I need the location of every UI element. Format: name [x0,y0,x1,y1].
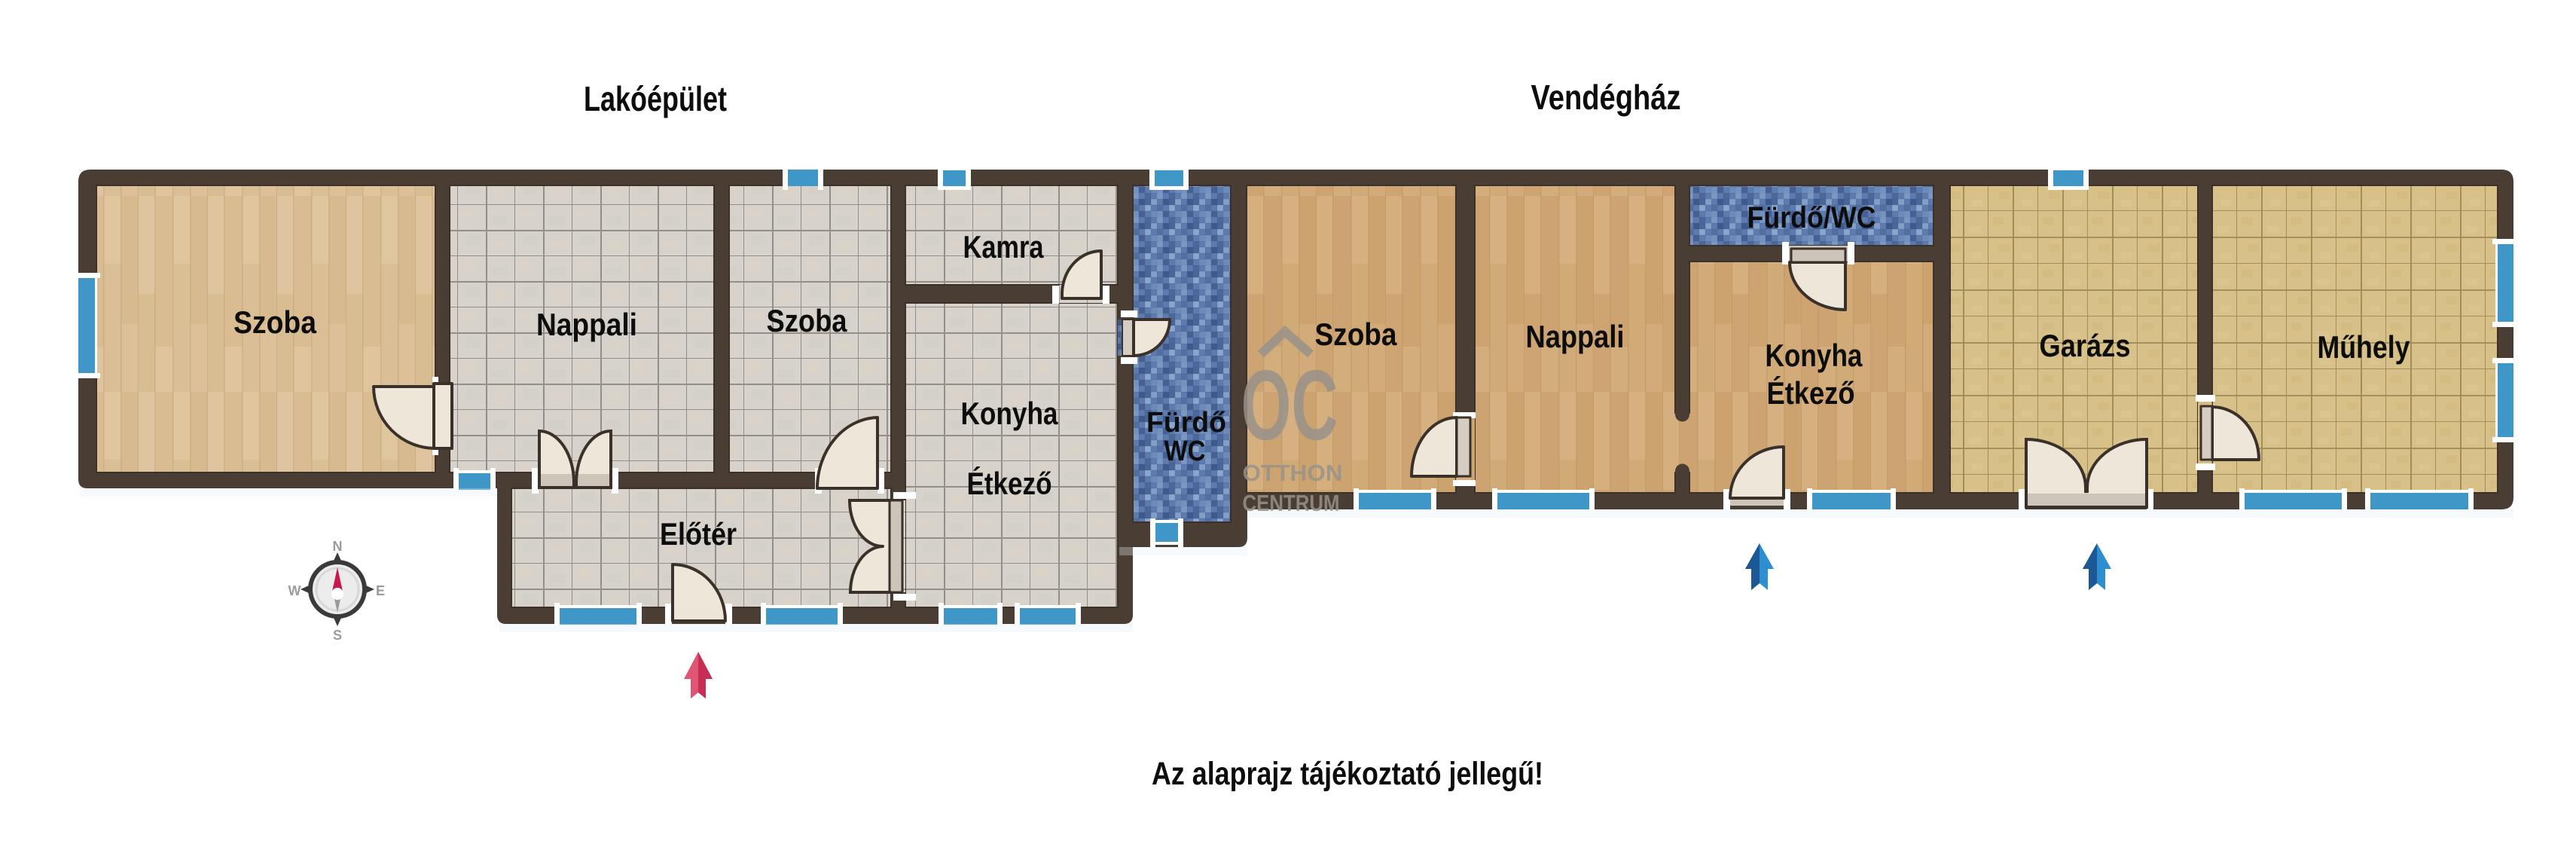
svg-text:S: S [333,628,342,643]
svg-text:Fürdő/WC: Fürdő/WC [1747,201,1876,234]
svg-text:Konyha: Konyha [1766,338,1863,373]
svg-text:Vendégház: Vendégház [1531,78,1681,117]
svg-text:Lakóépület: Lakóépület [584,79,727,118]
svg-text:Fürdő: Fürdő [1146,407,1226,439]
svg-text:OTTHON: OTTHON [1243,460,1343,486]
svg-text:Az alaprajz tájékoztató jelleg: Az alaprajz tájékoztató jellegű! [1152,756,1543,792]
svg-text:W: W [288,583,301,598]
svg-text:Konyha: Konyha [961,396,1059,431]
svg-text:N: N [333,539,343,554]
svg-text:Műhely: Műhely [2318,329,2411,365]
svg-text:WC: WC [1164,436,1206,467]
svg-text:Garázs: Garázs [2040,328,2131,363]
svg-text:Étkező: Étkező [967,466,1052,501]
svg-text:Kamra: Kamra [963,229,1045,265]
svg-text:Étkező: Étkező [1767,375,1855,411]
svg-text:CENTRUM: CENTRUM [1243,490,1340,516]
svg-text:Előtér: Előtér [660,516,737,552]
svg-text:Nappali: Nappali [536,307,637,342]
svg-text:Szoba: Szoba [1315,316,1398,352]
svg-text:Szoba: Szoba [233,304,317,340]
svg-text:OC: OC [1241,350,1338,460]
svg-text:E: E [376,583,385,598]
svg-text:Nappali: Nappali [1526,319,1625,354]
svg-text:Szoba: Szoba [767,303,848,338]
